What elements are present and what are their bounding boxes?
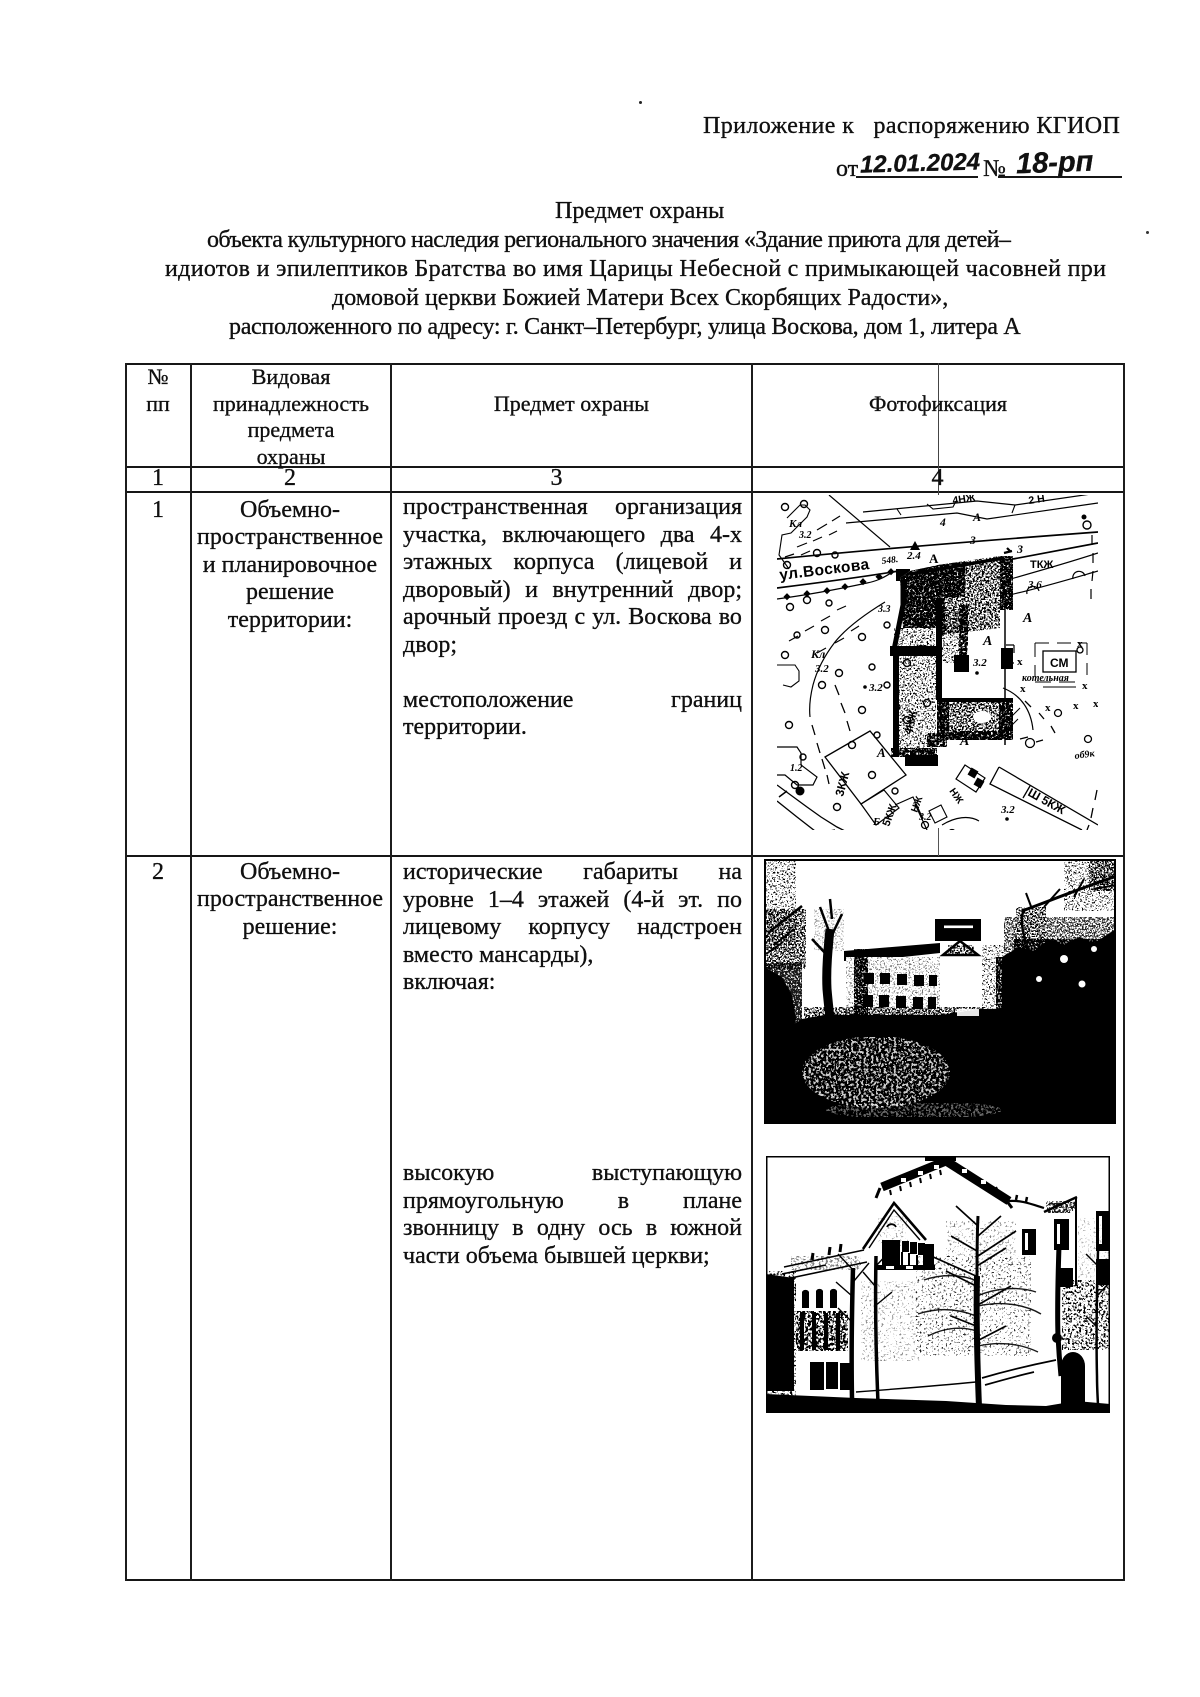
svg-text:А: А xyxy=(929,551,939,566)
svg-text:х: х xyxy=(1017,656,1023,668)
svg-text:х: х xyxy=(1045,702,1051,714)
svg-text:2 Н: 2 Н xyxy=(1028,495,1046,507)
svg-text:2.4: 2.4 xyxy=(906,550,921,562)
svg-text:4НЖ: 4НЖ xyxy=(902,709,920,735)
svg-text:х: х xyxy=(1073,700,1079,712)
svg-text:4: 4 xyxy=(939,517,946,529)
svg-text:3КЖ: 3КЖ xyxy=(832,770,852,798)
svg-text:ул.Воскова: ул.Воскова xyxy=(778,556,870,584)
svg-text:3.3: 3.3 xyxy=(877,604,891,615)
svg-text:х: х xyxy=(1082,680,1088,692)
svg-text:1.2: 1.2 xyxy=(790,763,803,774)
svg-text:4НЖ: 4НЖ xyxy=(952,495,977,507)
svg-text:3.2: 3.2 xyxy=(814,663,829,675)
svg-text:А: А xyxy=(972,510,981,524)
svg-text:3.2: 3.2 xyxy=(972,657,987,669)
svg-text:А: А xyxy=(959,734,969,749)
svg-text:об9к: об9к xyxy=(1074,748,1096,762)
svg-text:НЖ: НЖ xyxy=(947,786,966,806)
svg-text:ТКЖ: ТКЖ xyxy=(1030,559,1053,571)
svg-text:3: 3 xyxy=(1016,542,1023,556)
svg-text:А: А xyxy=(982,634,992,649)
svg-text:А: А xyxy=(876,745,886,760)
svg-text:Кл: Кл xyxy=(788,518,802,530)
svg-text:Кл: Кл xyxy=(810,647,825,661)
svg-text:3.2: 3.2 xyxy=(1000,804,1015,816)
svg-text:3.2: 3.2 xyxy=(918,812,932,823)
svg-text:3.2: 3.2 xyxy=(868,682,883,694)
svg-text:Б: Б xyxy=(872,816,880,828)
svg-text:3.2: 3.2 xyxy=(798,530,812,541)
svg-text:СМ: СМ xyxy=(1050,656,1069,670)
svg-text:х: х xyxy=(1020,683,1026,695)
svg-text:котельная: котельная xyxy=(1022,673,1069,684)
svg-text:5КЖ: 5КЖ xyxy=(881,802,900,828)
svg-text:х: х xyxy=(1093,698,1098,710)
svg-text:3: 3 xyxy=(969,535,976,547)
svg-text:А: А xyxy=(1022,611,1032,626)
svg-text:548.: 548. xyxy=(881,555,899,567)
